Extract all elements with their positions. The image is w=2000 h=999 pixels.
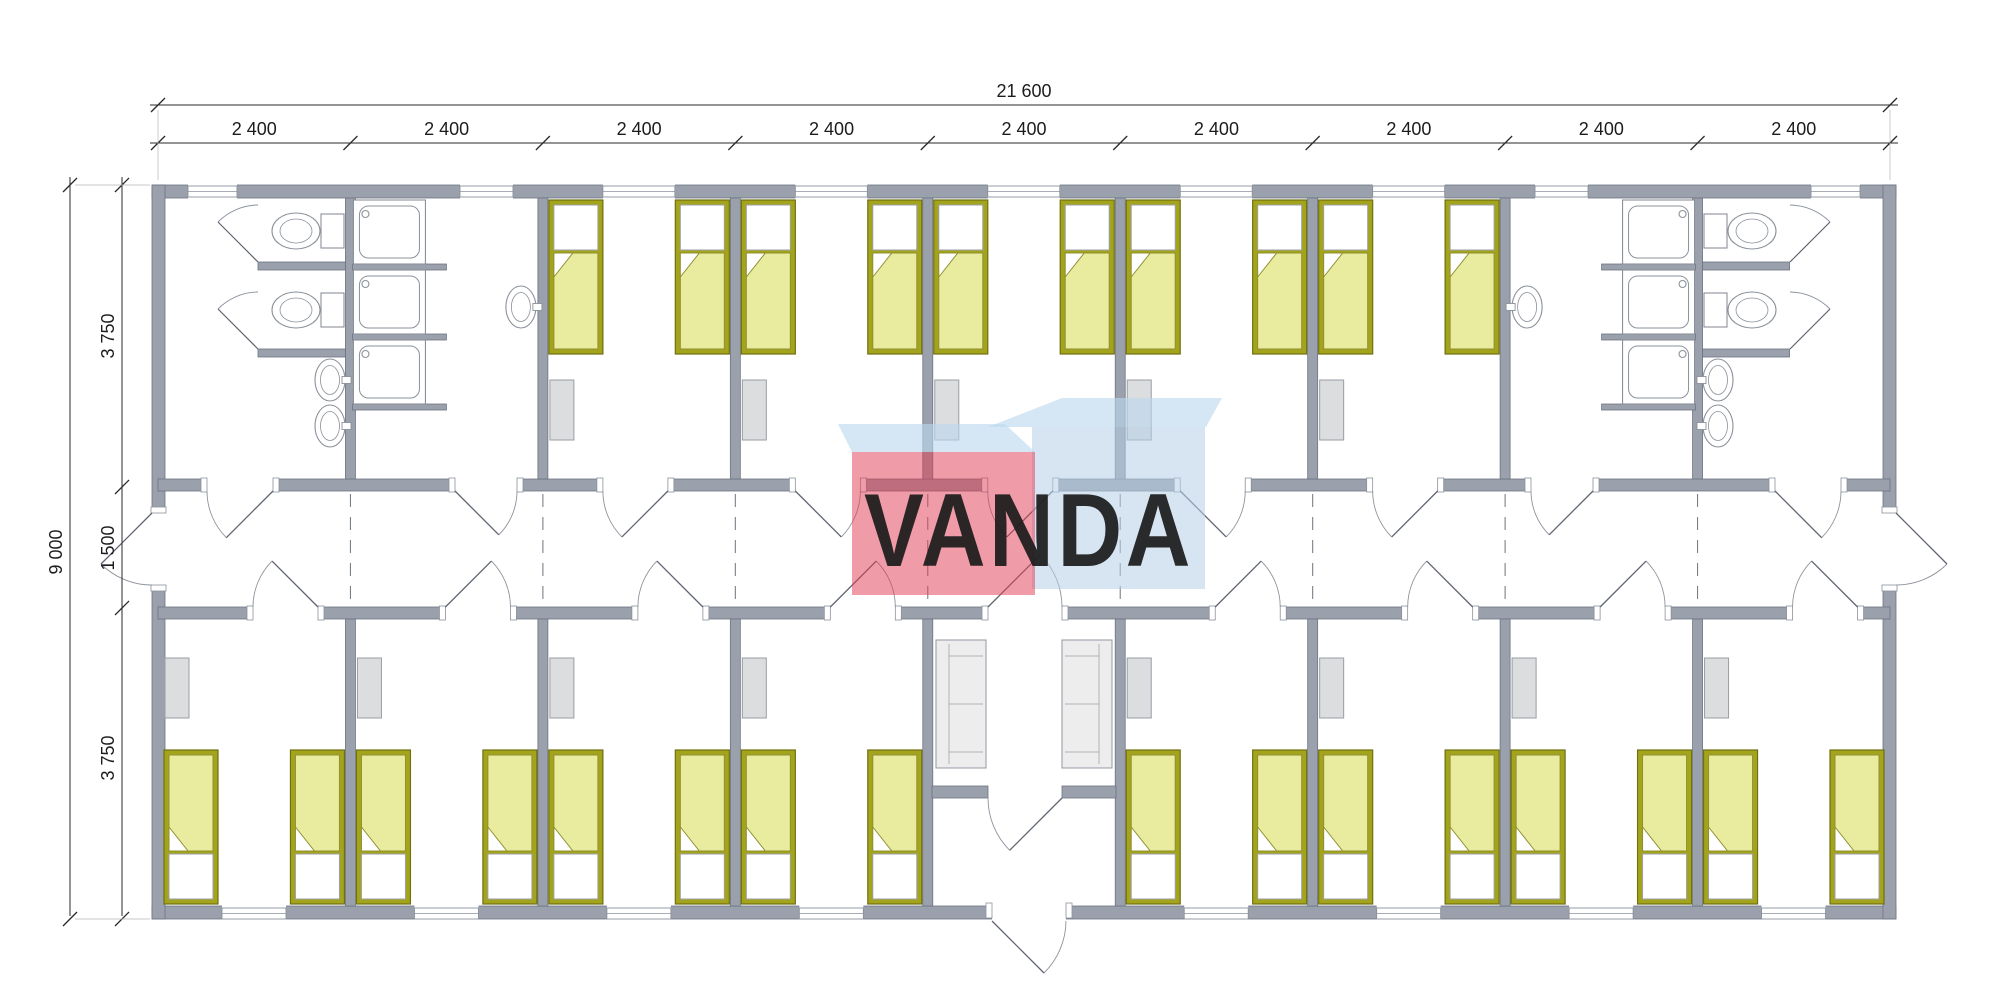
door-jamb bbox=[1841, 478, 1847, 492]
door-jamb bbox=[895, 606, 901, 620]
bed-pillow bbox=[295, 854, 339, 899]
toilet-bowl-inner bbox=[1736, 298, 1768, 322]
shower-tray bbox=[1623, 340, 1695, 404]
door-jamb bbox=[1209, 606, 1215, 620]
door-opening bbox=[638, 605, 703, 621]
door-jamb bbox=[151, 585, 166, 591]
bed-pillow bbox=[1258, 205, 1302, 250]
floorplan-page: VANDA21 6002 4002 4002 4002 4002 4002 40… bbox=[0, 0, 2000, 999]
partition-wall-bottom-row bbox=[1115, 619, 1125, 906]
dimension-label-module-width: 2 400 bbox=[617, 119, 662, 139]
wardrobe bbox=[1512, 658, 1536, 718]
sink-basin-inner bbox=[511, 293, 530, 322]
door-jamb bbox=[1787, 606, 1793, 620]
wc-stall-divider bbox=[258, 262, 345, 270]
wc-stall-divider bbox=[1703, 262, 1790, 270]
door-jamb bbox=[1594, 606, 1600, 620]
shower-tray bbox=[1623, 200, 1695, 264]
lobby-inner-wall-right bbox=[1062, 786, 1116, 798]
shower-tray bbox=[353, 270, 425, 334]
door-jamb bbox=[1882, 507, 1897, 513]
door-jamb bbox=[1245, 478, 1251, 492]
bed-pillow bbox=[554, 854, 598, 899]
door-opening bbox=[1881, 513, 1898, 585]
sink-basin-inner bbox=[1709, 412, 1728, 441]
partition-wall-bottom-row bbox=[345, 619, 355, 906]
partition-wall-top-row bbox=[538, 198, 548, 479]
shower-divider bbox=[352, 334, 446, 340]
wardrobe bbox=[742, 380, 766, 440]
door-jamb bbox=[318, 606, 324, 620]
bed-pillow bbox=[169, 854, 213, 899]
door-jamb bbox=[1062, 606, 1068, 620]
wardrobe bbox=[550, 658, 574, 718]
door-jamb bbox=[982, 606, 988, 620]
door-jamb bbox=[449, 478, 455, 492]
door-opening bbox=[830, 605, 895, 621]
door-jamb bbox=[247, 606, 253, 620]
dimension-label-module-width: 2 400 bbox=[1001, 119, 1046, 139]
bed-pillow bbox=[1516, 854, 1560, 899]
wc-stall-divider bbox=[258, 349, 345, 357]
bed-pillow bbox=[746, 854, 790, 899]
dimension-label-module-width: 2 400 bbox=[1386, 119, 1431, 139]
door-opening bbox=[603, 477, 668, 493]
door-jamb bbox=[510, 606, 516, 620]
door-jamb bbox=[1882, 585, 1897, 591]
partition-wall-bottom-row bbox=[1693, 619, 1703, 906]
door-opening bbox=[150, 513, 167, 585]
bed-pillow bbox=[1450, 205, 1494, 250]
door-jamb bbox=[517, 478, 523, 492]
wardrobe bbox=[1320, 380, 1344, 440]
toilet-bowl-inner bbox=[280, 298, 312, 322]
bed-pillow bbox=[1324, 854, 1368, 899]
sink-basin-inner bbox=[321, 412, 340, 441]
bed-pillow bbox=[1450, 854, 1494, 899]
door-jamb bbox=[1367, 478, 1373, 492]
door-jamb bbox=[824, 606, 830, 620]
door-jamb bbox=[668, 478, 674, 492]
door-jamb bbox=[597, 478, 603, 492]
bed-pillow bbox=[554, 205, 598, 250]
partition-wall-top-row bbox=[1500, 198, 1510, 479]
shower-tray bbox=[353, 200, 425, 264]
door-jamb bbox=[1769, 478, 1775, 492]
bed-pillow bbox=[1131, 205, 1175, 250]
door-opening bbox=[1373, 477, 1438, 493]
wardrobe bbox=[357, 658, 381, 718]
toilet-tank bbox=[1704, 214, 1727, 248]
bed-pillow bbox=[939, 205, 983, 250]
wc-stall-divider bbox=[1703, 349, 1790, 357]
door-jamb bbox=[1402, 606, 1408, 620]
bed-pillow bbox=[488, 854, 532, 899]
door-opening bbox=[1775, 477, 1841, 493]
toilet-tank bbox=[321, 293, 344, 327]
dimension-label-corridor-depth: 1 500 bbox=[98, 525, 118, 570]
sink-tap bbox=[342, 377, 351, 384]
wardrobe bbox=[550, 380, 574, 440]
door-jamb bbox=[439, 606, 445, 620]
door-jamb bbox=[1066, 903, 1072, 918]
sink-tap bbox=[533, 304, 542, 311]
partition-wall-top-row bbox=[730, 198, 740, 479]
sink-tap bbox=[1697, 377, 1706, 384]
sink-tap bbox=[1697, 423, 1706, 430]
dimension-label-lower-depth: 3 750 bbox=[98, 735, 118, 780]
door-jamb bbox=[1593, 478, 1599, 492]
partition-wall-bottom-row bbox=[538, 619, 548, 906]
wardrobe bbox=[165, 658, 189, 718]
door-jamb bbox=[1280, 606, 1286, 620]
door-opening bbox=[1600, 605, 1665, 621]
door-jamb bbox=[1525, 478, 1531, 492]
bed-pillow bbox=[680, 205, 724, 250]
wardrobe bbox=[1127, 658, 1151, 718]
shower-divider bbox=[1602, 264, 1696, 270]
bed-pillow bbox=[680, 854, 724, 899]
dimension-label-upper-depth: 3 750 bbox=[98, 313, 118, 358]
wardrobe bbox=[1705, 658, 1729, 718]
dimension-label-module-width: 2 400 bbox=[1771, 119, 1816, 139]
door-jamb bbox=[201, 478, 207, 492]
dimension-label-module-width: 2 400 bbox=[1194, 119, 1239, 139]
bed-pillow bbox=[361, 854, 405, 899]
door-jamb bbox=[1438, 478, 1444, 492]
toilet-bowl-inner bbox=[280, 219, 312, 243]
door-opening bbox=[992, 904, 1066, 921]
shower-divider bbox=[352, 264, 446, 270]
bed-pillow bbox=[1258, 854, 1302, 899]
door-opening bbox=[988, 605, 1062, 621]
dimension-label-module-width: 2 400 bbox=[232, 119, 277, 139]
toilet-tank bbox=[321, 214, 344, 248]
wardrobe bbox=[742, 658, 766, 718]
shower-divider bbox=[1602, 334, 1696, 340]
door-jamb bbox=[151, 507, 166, 513]
bed-pillow bbox=[873, 205, 917, 250]
watermark-red-box-top bbox=[838, 424, 1035, 452]
shower-divider bbox=[352, 404, 446, 410]
door-opening bbox=[207, 477, 273, 493]
dimension-label-module-width: 2 400 bbox=[1579, 119, 1624, 139]
toilet-tank bbox=[1704, 293, 1727, 327]
door-opening bbox=[1531, 477, 1593, 493]
bed-pillow bbox=[1065, 205, 1109, 250]
dimension-label-module-width: 2 400 bbox=[809, 119, 854, 139]
dimension-label-overall-width: 21 600 bbox=[996, 81, 1051, 101]
door-opening bbox=[1793, 605, 1858, 621]
door-opening bbox=[1408, 605, 1473, 621]
door-opening bbox=[795, 477, 860, 493]
door-jamb bbox=[789, 478, 795, 492]
partition-wall-bottom-row bbox=[1500, 619, 1510, 906]
bed-pillow bbox=[746, 205, 790, 250]
door-opening bbox=[253, 605, 318, 621]
door-opening bbox=[1215, 605, 1280, 621]
bed-pillow bbox=[1131, 854, 1175, 899]
wardrobe bbox=[1320, 658, 1344, 718]
partition-wall-bottom-row bbox=[1308, 619, 1318, 906]
bed-pillow bbox=[1643, 854, 1687, 899]
door-jamb bbox=[703, 606, 709, 620]
door-opening bbox=[445, 605, 510, 621]
sink-basin-inner bbox=[1709, 366, 1728, 395]
watermark-text: VANDA bbox=[864, 473, 1194, 589]
bed-pillow bbox=[1835, 854, 1879, 899]
door-opening bbox=[455, 477, 517, 493]
shower-tray bbox=[353, 340, 425, 404]
lobby-inner-wall-left bbox=[932, 786, 988, 798]
door-jamb bbox=[273, 478, 279, 492]
door-jamb bbox=[632, 606, 638, 620]
door-jamb bbox=[1665, 606, 1671, 620]
bed-pillow bbox=[1324, 205, 1368, 250]
toilet-bowl-inner bbox=[1736, 219, 1768, 243]
floorplan-drawing: VANDA21 6002 4002 4002 4002 4002 4002 40… bbox=[0, 0, 2000, 999]
shower-divider bbox=[1602, 404, 1696, 410]
partition-wall-top-row bbox=[1308, 198, 1318, 479]
sink-basin-inner bbox=[1518, 293, 1537, 322]
shower-tray bbox=[1623, 270, 1695, 334]
bed-pillow bbox=[1709, 854, 1753, 899]
bed-pillow bbox=[873, 854, 917, 899]
door-jamb bbox=[1858, 606, 1864, 620]
dimension-label-overall-depth: 9 000 bbox=[46, 529, 66, 574]
sink-tap bbox=[1506, 304, 1515, 311]
door-jamb bbox=[986, 903, 992, 918]
dimension-label-module-width: 2 400 bbox=[424, 119, 469, 139]
sink-basin-inner bbox=[321, 366, 340, 395]
partition-wall-bottom-row bbox=[730, 619, 740, 906]
sink-tap bbox=[342, 423, 351, 430]
partition-wall-bottom-row bbox=[923, 619, 933, 906]
door-jamb bbox=[1473, 606, 1479, 620]
